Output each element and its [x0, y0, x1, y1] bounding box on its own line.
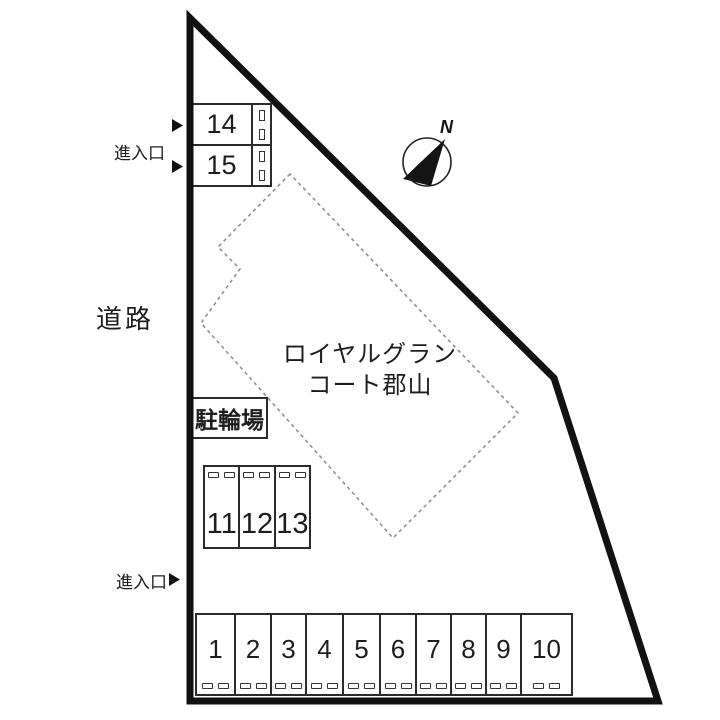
wheel-stop-mark — [327, 683, 338, 689]
wheel-stop-mark — [436, 683, 447, 689]
stall-number: 3 — [281, 615, 295, 683]
wheel-stop-mark — [218, 683, 229, 689]
stall-number: 12 — [241, 478, 273, 547]
site-plan-canvas: N 14 15 進入口 道路 ロイヤルグラン コート郡山 駐輪場 進入口 11 … — [0, 0, 720, 720]
wheel-stops — [311, 683, 338, 689]
wheel-stops — [202, 683, 229, 689]
wheel-stop-mark — [275, 683, 286, 689]
wheel-stop-mark — [311, 683, 322, 689]
wheel-stop-mark — [490, 683, 501, 689]
wheel-stop-mark — [506, 683, 517, 689]
parking-row-bottom: 1 2 3 4 5 6 7 8 — [195, 613, 573, 696]
parking-stall-7: 7 — [415, 615, 450, 694]
wheel-stops — [251, 105, 270, 144]
compass: N — [403, 117, 454, 186]
wheel-stop-mark — [401, 683, 412, 689]
wheel-stops — [251, 146, 270, 185]
stall-number: 1 — [208, 615, 222, 683]
stall-number: 6 — [391, 615, 405, 683]
parking-stall-10: 10 — [520, 615, 571, 694]
wheel-stop-mark — [291, 683, 302, 689]
stall-number: 9 — [496, 615, 510, 683]
stall-number: 5 — [354, 615, 368, 683]
wheel-stops — [385, 683, 412, 689]
wheel-stop-mark — [549, 683, 560, 689]
wheel-stop-mark — [455, 683, 466, 689]
parking-stall-13: 13 — [274, 467, 309, 547]
parking-stall-12: 12 — [238, 467, 273, 547]
wheel-stops — [533, 683, 560, 689]
wheel-stops — [490, 683, 517, 689]
wheel-stop-mark — [471, 683, 482, 689]
parking-stall-2: 2 — [234, 615, 270, 694]
wheel-stops — [275, 683, 302, 689]
building-name-line1: ロイヤルグラン — [256, 339, 484, 370]
wheel-stop-mark — [259, 170, 265, 181]
wheel-stops — [420, 683, 447, 689]
parking-stall-11: 11 — [205, 467, 238, 547]
wheel-stop-mark — [259, 129, 265, 140]
stall-number: 10 — [532, 615, 561, 683]
building-name: ロイヤルグラン コート郡山 — [256, 339, 484, 401]
parking-stall-4: 4 — [305, 615, 342, 694]
stall-number: 7 — [426, 615, 440, 683]
parking-row-top: 14 15 — [190, 103, 272, 187]
wheel-stop-mark — [348, 683, 359, 689]
bicycle-parking-box: 駐輪場 — [191, 397, 268, 439]
entrance-arrow-icon — [172, 119, 183, 132]
parking-stall-14: 14 — [192, 105, 270, 144]
wheel-stop-mark — [420, 683, 431, 689]
parking-stall-3: 3 — [270, 615, 305, 694]
parking-row-middle: 11 12 13 — [203, 465, 311, 549]
compass-north-label: N — [440, 117, 454, 137]
wheel-stop-mark — [259, 110, 265, 121]
entrance-label-top: 進入口 — [114, 139, 165, 164]
stall-number: 11 — [207, 478, 237, 547]
wheel-stop-mark — [259, 151, 265, 162]
stall-number: 14 — [192, 105, 251, 144]
stall-number: 2 — [246, 615, 260, 683]
wheel-stops — [240, 683, 267, 689]
parking-stall-1: 1 — [197, 615, 234, 694]
parking-stall-6: 6 — [379, 615, 415, 694]
wheel-stop-mark — [202, 683, 213, 689]
road-label: 道路 — [96, 299, 154, 336]
parking-stall-8: 8 — [450, 615, 485, 694]
stall-number: 8 — [461, 615, 475, 683]
wheel-stops — [455, 683, 482, 689]
wheel-stop-mark — [533, 683, 544, 689]
compass-needle-icon — [403, 139, 445, 186]
wheel-stop-mark — [364, 683, 375, 689]
stall-number: 4 — [317, 615, 331, 683]
parking-stall-9: 9 — [485, 615, 520, 694]
parking-stall-5: 5 — [342, 615, 379, 694]
wheel-stop-mark — [385, 683, 396, 689]
building-name-line2: コート郡山 — [256, 370, 484, 401]
wheel-stop-mark — [240, 683, 251, 689]
entrance-label-bottom: 進入口 — [116, 568, 167, 593]
parking-stall-15: 15 — [192, 144, 270, 185]
stall-number: 15 — [192, 146, 251, 185]
entrance-arrow-icon — [169, 573, 180, 586]
entrance-arrow-icon — [172, 160, 183, 173]
wheel-stops — [348, 683, 375, 689]
stall-number: 13 — [276, 478, 308, 547]
wheel-stop-mark — [256, 683, 267, 689]
compass-circle — [403, 138, 451, 186]
